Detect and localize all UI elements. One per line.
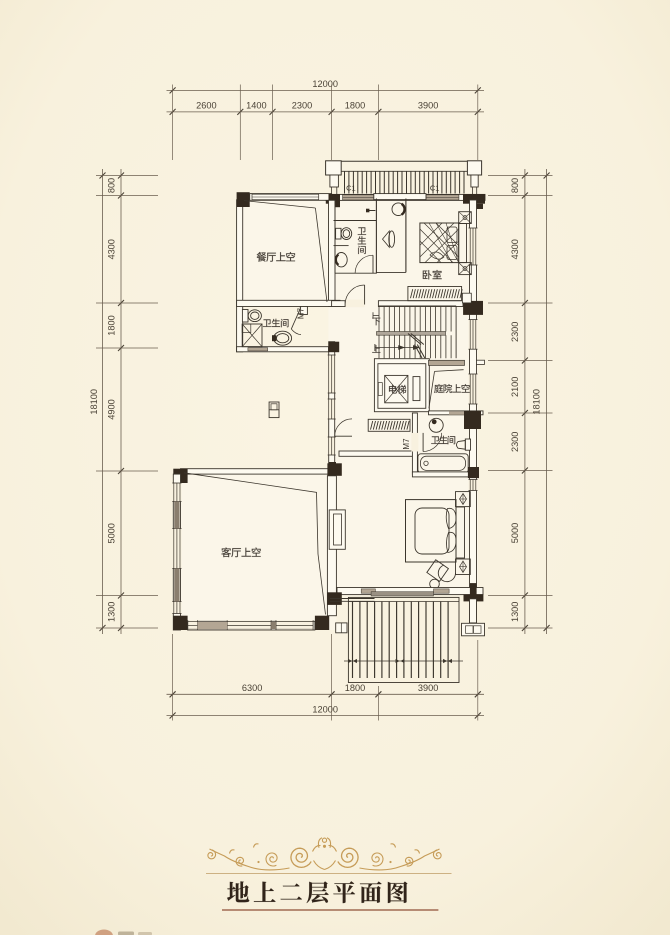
svg-text:4300: 4300 — [510, 239, 520, 259]
svg-text:5000: 5000 — [510, 523, 520, 543]
svg-text:1800: 1800 — [345, 683, 365, 693]
svg-text:1400: 1400 — [246, 101, 266, 111]
svg-text:1300: 1300 — [510, 602, 520, 622]
svg-text:1800: 1800 — [107, 315, 117, 335]
svg-text:6300: 6300 — [242, 683, 262, 693]
svg-text:4900: 4900 — [107, 399, 117, 419]
svg-text:2100: 2100 — [510, 377, 520, 397]
svg-text:2300: 2300 — [510, 432, 520, 452]
svg-text:800: 800 — [107, 178, 117, 193]
svg-text:M7: M7 — [297, 307, 306, 319]
svg-text:5000: 5000 — [107, 523, 117, 543]
svg-text:3900: 3900 — [418, 101, 438, 111]
svg-text:12000: 12000 — [312, 79, 338, 89]
svg-text:18100: 18100 — [89, 389, 99, 415]
svg-text:2300: 2300 — [510, 322, 520, 342]
svg-text:800: 800 — [510, 178, 520, 193]
svg-text:2300: 2300 — [292, 101, 312, 111]
svg-text:2600: 2600 — [196, 101, 216, 111]
svg-text:4300: 4300 — [107, 239, 117, 259]
svg-text:3900: 3900 — [418, 683, 438, 693]
svg-text:C1: C1 — [430, 184, 440, 193]
svg-text:1300: 1300 — [107, 602, 117, 622]
svg-text:18100: 18100 — [532, 389, 542, 415]
svg-text:M7: M7 — [402, 438, 411, 450]
svg-text:12000: 12000 — [312, 704, 338, 714]
svg-text:C1: C1 — [346, 184, 356, 193]
svg-text:1800: 1800 — [345, 101, 365, 111]
